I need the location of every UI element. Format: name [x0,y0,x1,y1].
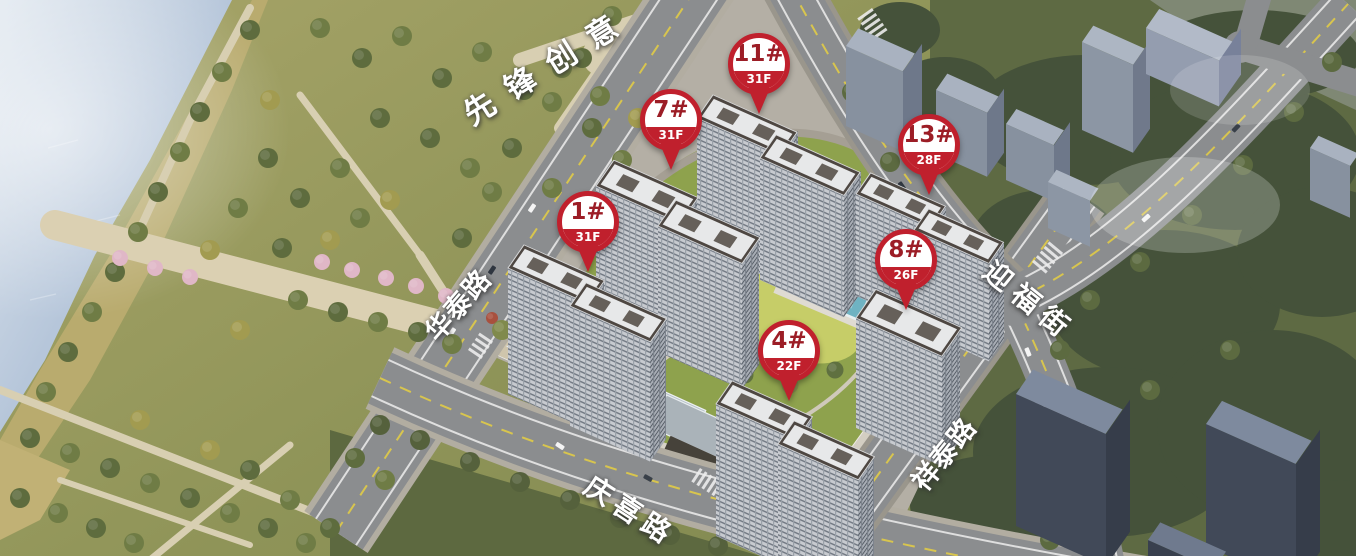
marker-building: 13# [903,119,955,152]
marker-bubble: 7# 31F [640,89,702,151]
marker-building: 7# [645,94,697,127]
building-marker-1[interactable]: 1# 31F [557,191,619,272]
building-marker-11[interactable]: 11# 31F [728,33,790,114]
marker-bubble: 11# 31F [728,33,790,95]
building-marker-8[interactable]: 8# 26F [875,229,937,310]
marker-bubble: 13# 28F [898,114,960,176]
marker-building: 4# [763,325,815,358]
marker-building: 1# [562,196,614,229]
marker-building: 8# [880,234,932,267]
marker-bubble: 8# 26F [875,229,937,291]
marker-tail-icon [895,284,917,310]
marker-tail-icon [778,375,800,401]
building-marker-13[interactable]: 13# 28F [898,114,960,195]
building-marker-7[interactable]: 7# 31F [640,89,702,170]
marker-tail-icon [577,246,599,272]
site-plan-map: 先锋创意 华泰路 庆喜路 祥泰路 迎福街 1# 31F 4# 22F 7# 31… [0,0,1356,556]
marker-tail-icon [660,144,682,170]
building-marker-4[interactable]: 4# 22F [758,320,820,401]
marker-tail-icon [748,88,770,114]
aerial-site-render [0,0,1356,556]
marker-tail-icon [918,169,940,195]
marker-bubble: 4# 22F [758,320,820,382]
marker-bubble: 1# 31F [557,191,619,253]
marker-building: 11# [733,38,785,71]
